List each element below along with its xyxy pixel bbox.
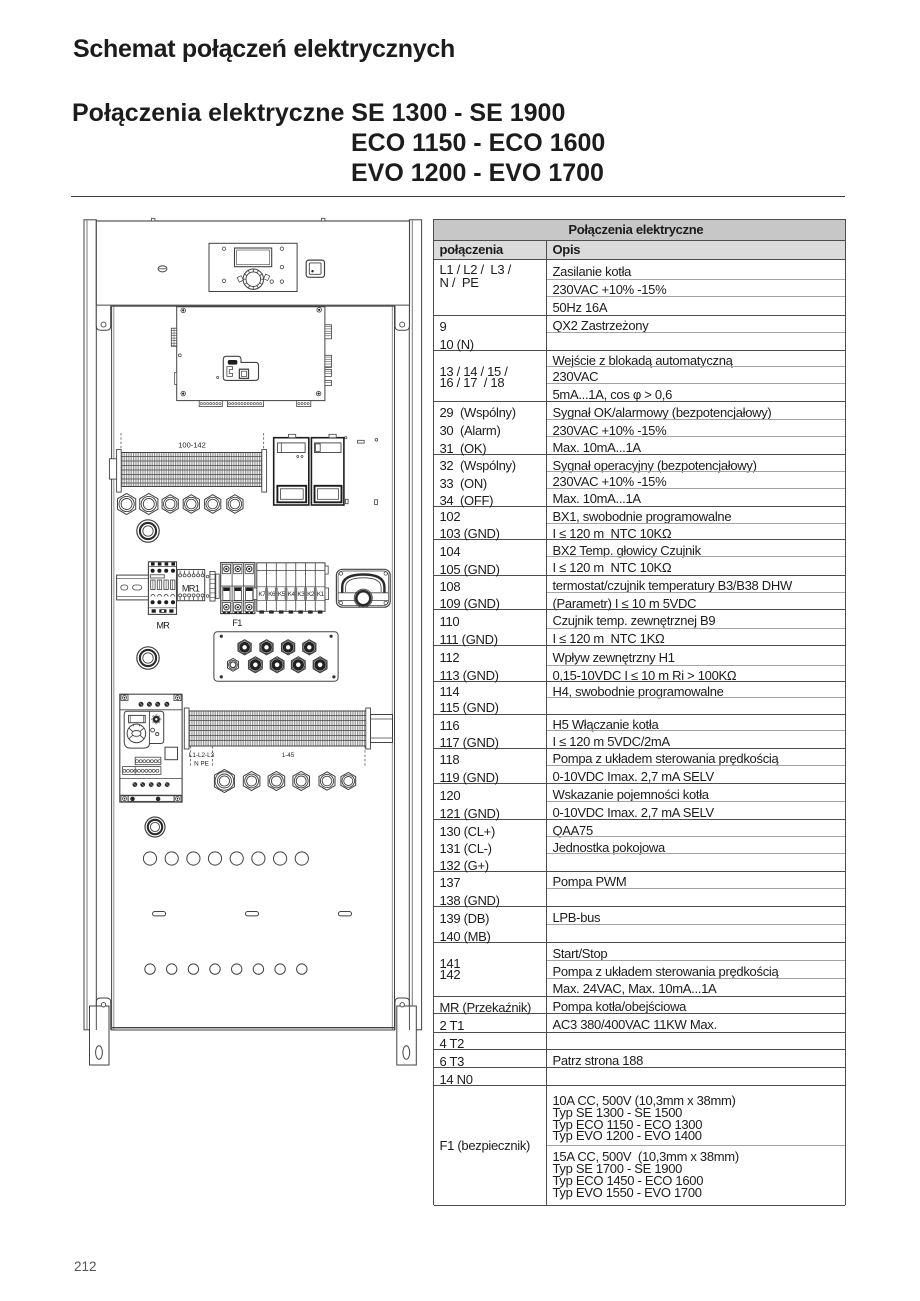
svg-text:K1: K1 [317,591,325,598]
svg-text:K2: K2 [307,591,315,598]
svg-text:K4: K4 [288,591,296,598]
svg-text:K6: K6 [268,591,276,598]
svg-text:L1-L2-L3: L1-L2-L3 [189,752,215,759]
svg-text:100-142: 100-142 [178,441,206,450]
svg-text:F1: F1 [232,618,242,628]
svg-text:N PE: N PE [194,761,209,768]
svg-text:K5: K5 [278,591,286,598]
svg-text:K7: K7 [258,591,266,598]
svg-text:MR1: MR1 [182,583,200,593]
svg-text:MR: MR [156,620,170,630]
svg-text:1-45: 1-45 [282,752,295,759]
svg-text:K3: K3 [297,591,305,598]
